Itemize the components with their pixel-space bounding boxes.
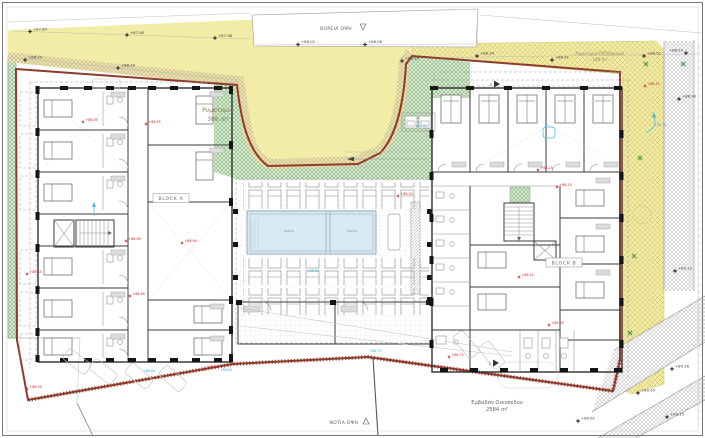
svg-text:+89.05: +89.05 xyxy=(552,321,564,325)
svg-text:+87.90: +87.90 xyxy=(130,30,145,35)
level-marker-blue: +88.75 xyxy=(369,349,381,353)
svg-text:+88.17: +88.17 xyxy=(648,82,660,86)
boundary-hatched-edge xyxy=(28,357,620,400)
svg-text:+88.30: +88.30 xyxy=(654,123,666,127)
floor-plan-sheet: ΒΟΡΕΙΑ ΟΨΗ Πισίνα Πισίνα xyxy=(0,0,705,438)
road-right-name: Ρυμοτομια-Πεζόδρομος xyxy=(575,51,625,56)
sun-lounger-row-bottom-1 xyxy=(243,258,429,285)
level-marker-blue: +88.20 xyxy=(307,269,319,273)
level-marker-red: +86.90 xyxy=(124,237,141,243)
beds-block-a xyxy=(44,96,222,355)
svg-text:BLOCK A: BLOCK A xyxy=(159,196,184,202)
svg-text:+86.85: +86.85 xyxy=(30,270,42,274)
level-marker-red: +86.95 xyxy=(81,118,98,124)
road-top-area: 388 m² xyxy=(207,116,229,123)
pool-label-left: Πισίνα xyxy=(284,229,294,233)
plot-area-label: Εμβαδόν Οικοπέδου xyxy=(471,399,523,406)
level-marker-blue: +88.60 xyxy=(143,369,155,373)
north-view-label: ΒΟΡΕΙΑ ΟΨΗ xyxy=(320,26,352,32)
svg-text:+88.55: +88.55 xyxy=(669,48,684,53)
svg-text:+88.41: +88.41 xyxy=(555,55,570,60)
svg-text:+86.90: +86.90 xyxy=(129,237,141,241)
svg-text:+88.60: +88.60 xyxy=(220,368,232,372)
svg-text:+86.90: +86.90 xyxy=(185,239,197,243)
planter-strip xyxy=(411,202,420,294)
svg-text:+88.51: +88.51 xyxy=(647,51,662,56)
svg-text:+88.60: +88.60 xyxy=(143,369,155,373)
block-b-outline xyxy=(432,88,622,372)
bath-fixtures-a xyxy=(107,96,123,346)
svg-text:+89.26: +89.26 xyxy=(675,364,690,369)
svg-text:+89.15: +89.15 xyxy=(670,412,685,417)
svg-text:+88.08: +88.08 xyxy=(368,39,383,44)
svg-text:+87.98: +87.98 xyxy=(218,33,233,38)
svg-text:+89.12: +89.12 xyxy=(678,266,693,271)
svg-text:+87.84: +87.84 xyxy=(33,27,48,32)
block-a-label: BLOCK A xyxy=(153,194,189,203)
pool: Πισίνα Πισίνα xyxy=(247,211,376,254)
south-view-label: ΝΟΤΙΑ ΟΨΗ xyxy=(330,420,359,426)
site-plan-drawing: ΒΟΡΕΙΑ ΟΨΗ Πισίνα Πισίνα xyxy=(0,0,705,438)
svg-text:+89.61: +89.61 xyxy=(581,416,596,421)
section-line xyxy=(373,358,378,436)
svg-text:+88.75: +88.75 xyxy=(369,349,381,353)
level-marker-red: +88.60 xyxy=(202,365,219,371)
level-marker-blue: +88.60 xyxy=(220,368,232,372)
pool-bench xyxy=(388,214,400,250)
svg-text:+88.20: +88.20 xyxy=(401,192,413,196)
level-marker-blue: +88.30 xyxy=(654,123,666,127)
section-marks: 2 2 xyxy=(489,81,500,367)
block-b-label: BLOCK B xyxy=(546,258,582,267)
svg-text:BLOCK B: BLOCK B xyxy=(552,261,577,267)
svg-text:+88.60: +88.60 xyxy=(207,365,219,369)
level-marker-red: +88.75 xyxy=(447,353,464,359)
svg-text:+88.04: +88.04 xyxy=(28,55,43,60)
svg-text:+86.90: +86.90 xyxy=(133,292,145,296)
svg-text:+86.95: +86.95 xyxy=(86,118,98,122)
pool-label-right: Πισίνα xyxy=(347,229,357,233)
elevation-marker: +89.61 xyxy=(575,416,595,424)
level-marker-blue: +87.37 xyxy=(415,124,427,128)
svg-text:+88.20: +88.20 xyxy=(307,269,319,273)
level-marker-red: +88.15 xyxy=(517,273,534,279)
svg-text:+88.75: +88.75 xyxy=(452,353,464,357)
section-arrow-icon xyxy=(494,81,500,88)
section-arrow-icon xyxy=(493,360,499,367)
plot-area-value: 2584 m² xyxy=(486,407,508,413)
svg-text:+88.95: +88.95 xyxy=(30,385,42,389)
svg-text:+88.15: +88.15 xyxy=(522,273,534,277)
south-view-label-group: ΝΟΤΙΑ ΟΨΗ xyxy=(330,418,369,426)
elevator-block-b xyxy=(534,241,556,260)
elevation-marker: +89.26 xyxy=(669,364,689,372)
svg-text:+88.25: +88.25 xyxy=(560,183,572,187)
block-b: BLOCK B xyxy=(426,72,651,388)
north-view-box: ΒΟΡΕΙΑ ΟΨΗ xyxy=(252,9,478,47)
existing-road-strip xyxy=(664,41,694,291)
road-top-name: Ρυμοτομια xyxy=(202,107,234,114)
stairs-block-b xyxy=(504,203,534,241)
level-marker-red: +88.95 xyxy=(25,385,42,391)
elevator-block-a xyxy=(54,220,74,247)
road-right-area: 149 m² xyxy=(592,57,607,62)
level-marker-red: +86.90 xyxy=(128,292,145,298)
svg-text:+88.25: +88.25 xyxy=(541,166,553,170)
level-marker-red: +86.85 xyxy=(25,270,42,276)
green-strip-left xyxy=(8,58,16,338)
stairs-block-a xyxy=(76,220,114,247)
svg-text:+88.10: +88.10 xyxy=(121,63,136,68)
svg-text:+88.25: +88.25 xyxy=(405,56,420,61)
level-marker-red: +89.05 xyxy=(547,321,564,327)
piers-block-b xyxy=(430,86,624,372)
bath-fixtures-b xyxy=(436,192,458,344)
svg-text:+88.02: +88.02 xyxy=(301,39,316,44)
south-view-triangle-icon xyxy=(363,418,369,424)
svg-text:+88.90: +88.90 xyxy=(682,94,697,99)
green-patch-block-b xyxy=(510,187,530,202)
svg-text:+89.45: +89.45 xyxy=(641,388,656,393)
svg-text:+88.34: +88.34 xyxy=(480,51,495,56)
level-marker-red: +86.95 xyxy=(144,120,161,126)
svg-text:+86.95: +86.95 xyxy=(149,120,161,124)
svg-text:+87.37: +87.37 xyxy=(415,124,427,128)
